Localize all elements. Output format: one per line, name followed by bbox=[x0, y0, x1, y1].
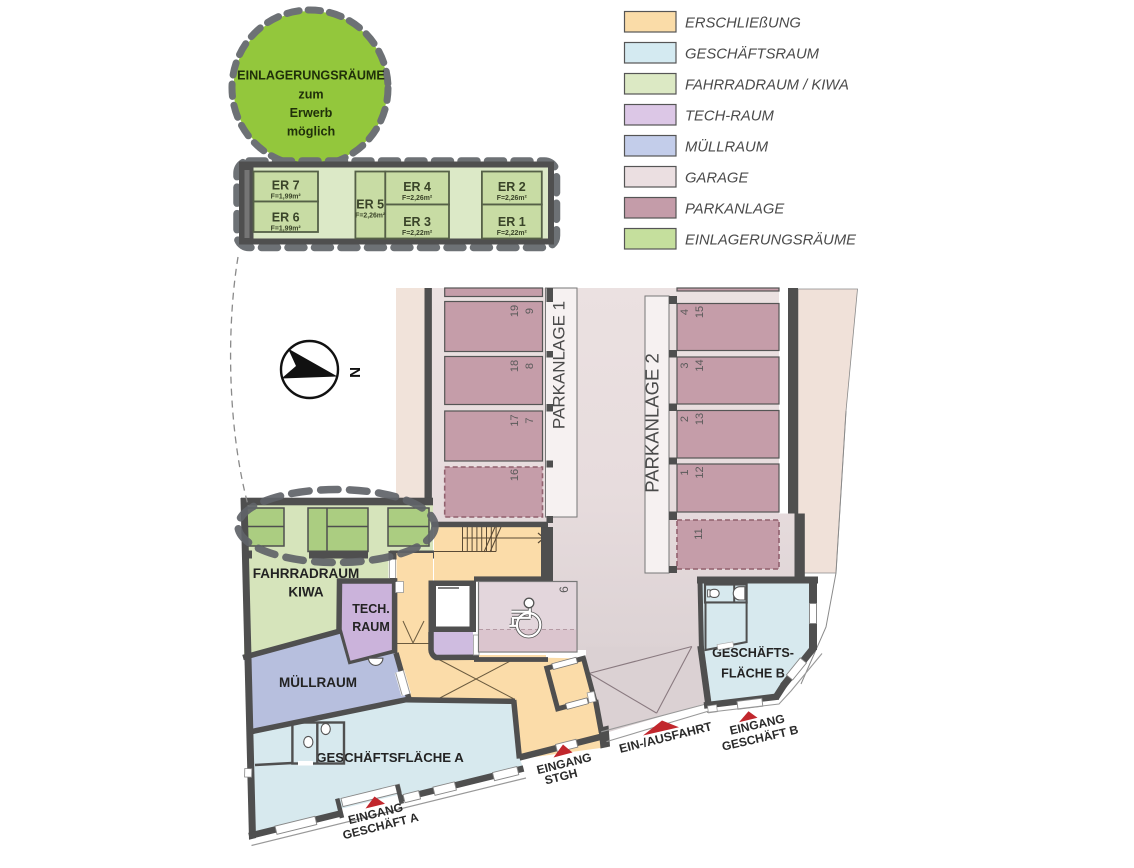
svg-text:F=1,99m²: F=1,99m² bbox=[271, 194, 302, 201]
svg-text:ER 3: ER 3 bbox=[403, 215, 431, 229]
svg-text:PARKANLAGE 2: PARKANLAGE 2 bbox=[642, 353, 663, 493]
svg-text:18: 18 bbox=[509, 360, 521, 372]
svg-text:F=2,26m²: F=2,26m² bbox=[355, 213, 386, 220]
svg-text:TECH-RAUM: TECH-RAUM bbox=[685, 109, 774, 125]
svg-text:F=2,26m²: F=2,26m² bbox=[497, 195, 528, 202]
svg-text:EINLAGERUNGSRÄUME: EINLAGERUNGSRÄUME bbox=[237, 68, 385, 83]
svg-text:2: 2 bbox=[679, 416, 691, 422]
svg-text:6: 6 bbox=[557, 586, 571, 593]
svg-text:F=2,22m²: F=2,22m² bbox=[402, 230, 433, 237]
svg-text:3: 3 bbox=[679, 362, 691, 368]
svg-text:Erwerb: Erwerb bbox=[290, 106, 333, 120]
svg-text:15: 15 bbox=[694, 306, 706, 318]
svg-text:ER 7: ER 7 bbox=[272, 179, 300, 193]
svg-text:19: 19 bbox=[509, 305, 521, 317]
svg-text:11: 11 bbox=[693, 528, 705, 539]
svg-text:14: 14 bbox=[694, 359, 706, 371]
svg-text:ER 5: ER 5 bbox=[356, 198, 384, 212]
svg-text:1: 1 bbox=[679, 469, 691, 475]
svg-text:9: 9 bbox=[524, 308, 536, 314]
svg-text:7: 7 bbox=[524, 417, 536, 423]
svg-text:4: 4 bbox=[679, 309, 691, 315]
svg-text:ER 6: ER 6 bbox=[272, 211, 300, 225]
svg-text:N: N bbox=[346, 367, 363, 378]
svg-text:8: 8 bbox=[524, 363, 536, 369]
svg-text:FLÄCHE B: FLÄCHE B bbox=[721, 666, 785, 681]
svg-text:MÜLLRAUM: MÜLLRAUM bbox=[279, 675, 357, 690]
svg-text:ERSCHLIEßUNG: ERSCHLIEßUNG bbox=[685, 16, 801, 32]
svg-text:F=1,99m²: F=1,99m² bbox=[271, 226, 302, 233]
svg-text:zum: zum bbox=[298, 88, 323, 102]
svg-text:PARKANLAGE: PARKANLAGE bbox=[685, 202, 784, 218]
svg-text:17: 17 bbox=[509, 414, 521, 426]
svg-text:KIWA: KIWA bbox=[288, 585, 323, 600]
svg-text:FAHRRADRAUM / KIWA: FAHRRADRAUM / KIWA bbox=[685, 78, 849, 94]
svg-text:16: 16 bbox=[509, 469, 521, 481]
svg-text:RAUM: RAUM bbox=[352, 620, 390, 634]
svg-text:ER 2: ER 2 bbox=[498, 180, 526, 194]
svg-text:13: 13 bbox=[694, 413, 706, 425]
svg-text:EINLAGERUNGSRÄUME: EINLAGERUNGSRÄUME bbox=[685, 232, 856, 249]
svg-text:ER 1: ER 1 bbox=[498, 215, 526, 229]
svg-text:MÜLLRAUM: MÜLLRAUM bbox=[685, 138, 769, 156]
svg-text:TECH.: TECH. bbox=[352, 602, 390, 616]
svg-text:GARAGE: GARAGE bbox=[685, 171, 748, 187]
svg-text:ER 4: ER 4 bbox=[403, 180, 431, 194]
svg-text:F=2,26m²: F=2,26m² bbox=[402, 195, 433, 202]
svg-text:F=2,22m²: F=2,22m² bbox=[497, 230, 528, 237]
svg-text:GESCHÄFTSRAUM: GESCHÄFTSRAUM bbox=[685, 46, 820, 63]
svg-text:möglich: möglich bbox=[287, 125, 335, 139]
svg-text:12: 12 bbox=[694, 466, 706, 478]
